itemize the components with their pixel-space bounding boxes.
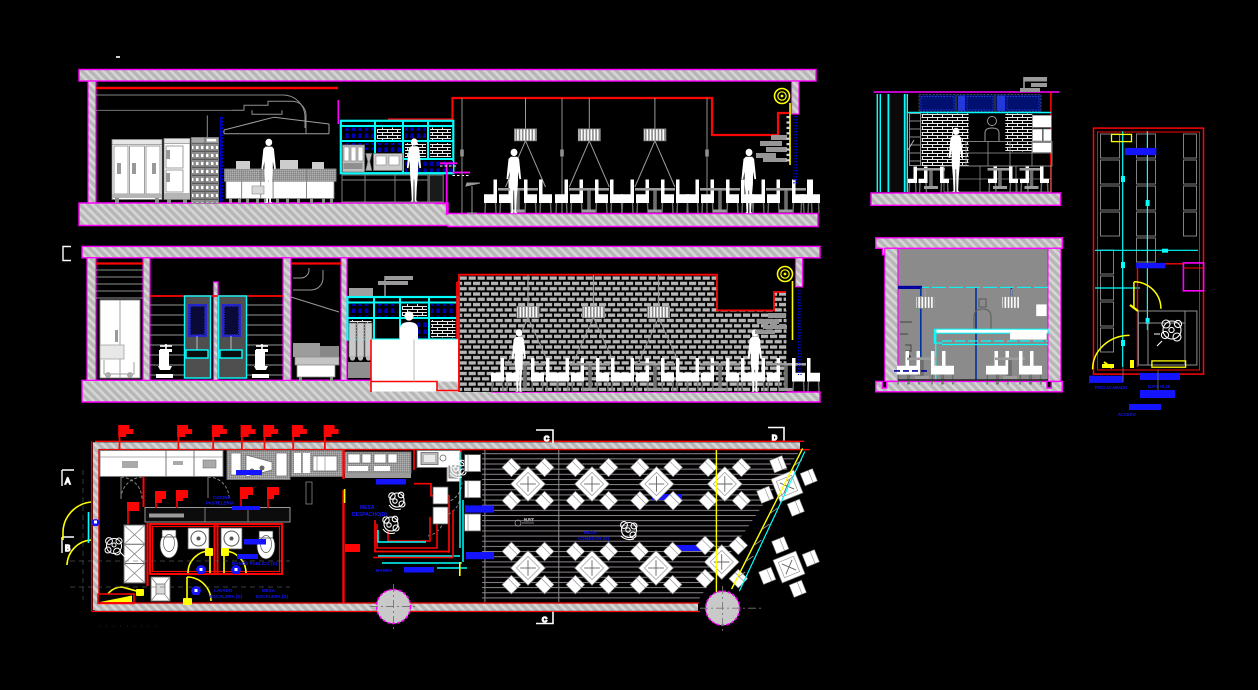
- svg-text:MESA: MESA: [262, 588, 276, 593]
- svg-text:DESPACHO(D): DESPACHO(D): [352, 512, 387, 518]
- svg-text:B: B: [65, 544, 70, 553]
- svg-text:BANOS PUBLICO (D): BANOS PUBLICO (D): [232, 561, 278, 566]
- svg-text:BARRA: BARRA: [376, 568, 393, 573]
- svg-text:D: D: [772, 435, 777, 442]
- svg-text:C: C: [542, 617, 547, 624]
- svg-text:MESA: MESA: [584, 530, 598, 535]
- svg-text:COCINA: COCINA: [213, 495, 231, 500]
- svg-text:N.P.T +0.15: N.P.T +0.15: [1148, 384, 1171, 389]
- svg-text:ESCALERA (D): ESCALERA (D): [256, 594, 289, 599]
- svg-text:C: C: [544, 436, 549, 443]
- svg-text:ACCESO: ACCESO: [1118, 412, 1137, 417]
- svg-text:PASTELERIA: PASTELERIA: [206, 501, 235, 506]
- svg-text:A: A: [65, 477, 71, 486]
- svg-text:COMEDOR (D): COMEDOR (D): [578, 536, 609, 541]
- svg-text:LAVADO: LAVADO: [214, 588, 233, 593]
- svg-text:N.P.T: N.P.T: [524, 517, 534, 522]
- svg-text:PISO ACABADO: PISO ACABADO: [1095, 385, 1128, 390]
- svg-text:ESCALERA (D): ESCALERA (D): [210, 594, 243, 599]
- svg-text:MESA: MESA: [360, 505, 375, 511]
